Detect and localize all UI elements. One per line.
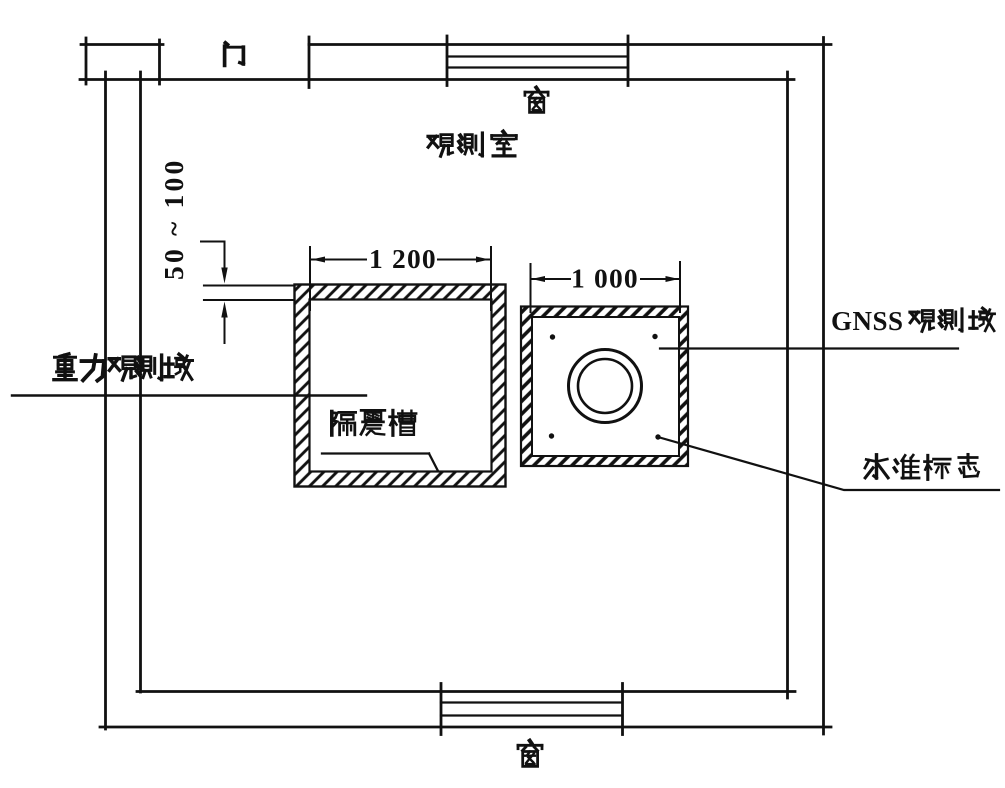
svg-text:GNSS: GNSS — [831, 306, 904, 336]
svg-text:1 200: 1 200 — [369, 243, 437, 274]
svg-text:1 000: 1 000 — [571, 263, 639, 294]
svg-text:50 ~ 100: 50 ~ 100 — [158, 158, 189, 280]
